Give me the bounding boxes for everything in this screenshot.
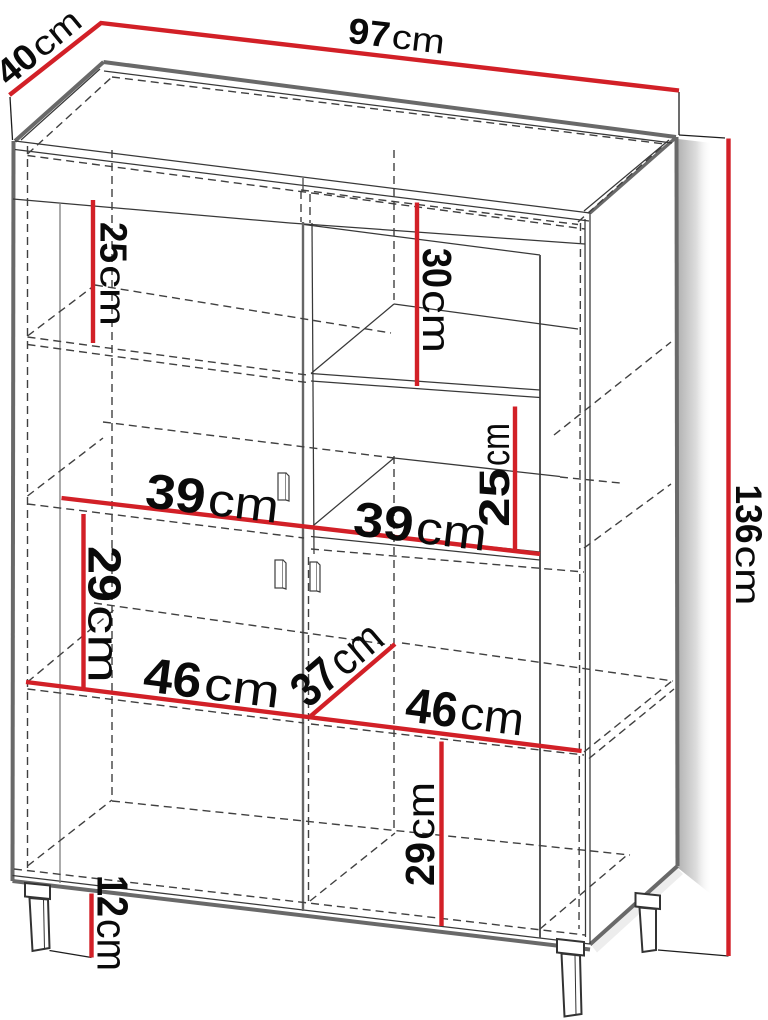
svg-text:29cm: 29cm bbox=[397, 782, 443, 886]
svg-text:25cm: 25cm bbox=[92, 222, 134, 326]
svg-text:12cm: 12cm bbox=[88, 875, 137, 971]
svg-text:136cm: 136cm bbox=[728, 485, 768, 606]
svg-text:30cm: 30cm bbox=[414, 248, 460, 353]
svg-text:29cm: 29cm bbox=[79, 546, 131, 683]
